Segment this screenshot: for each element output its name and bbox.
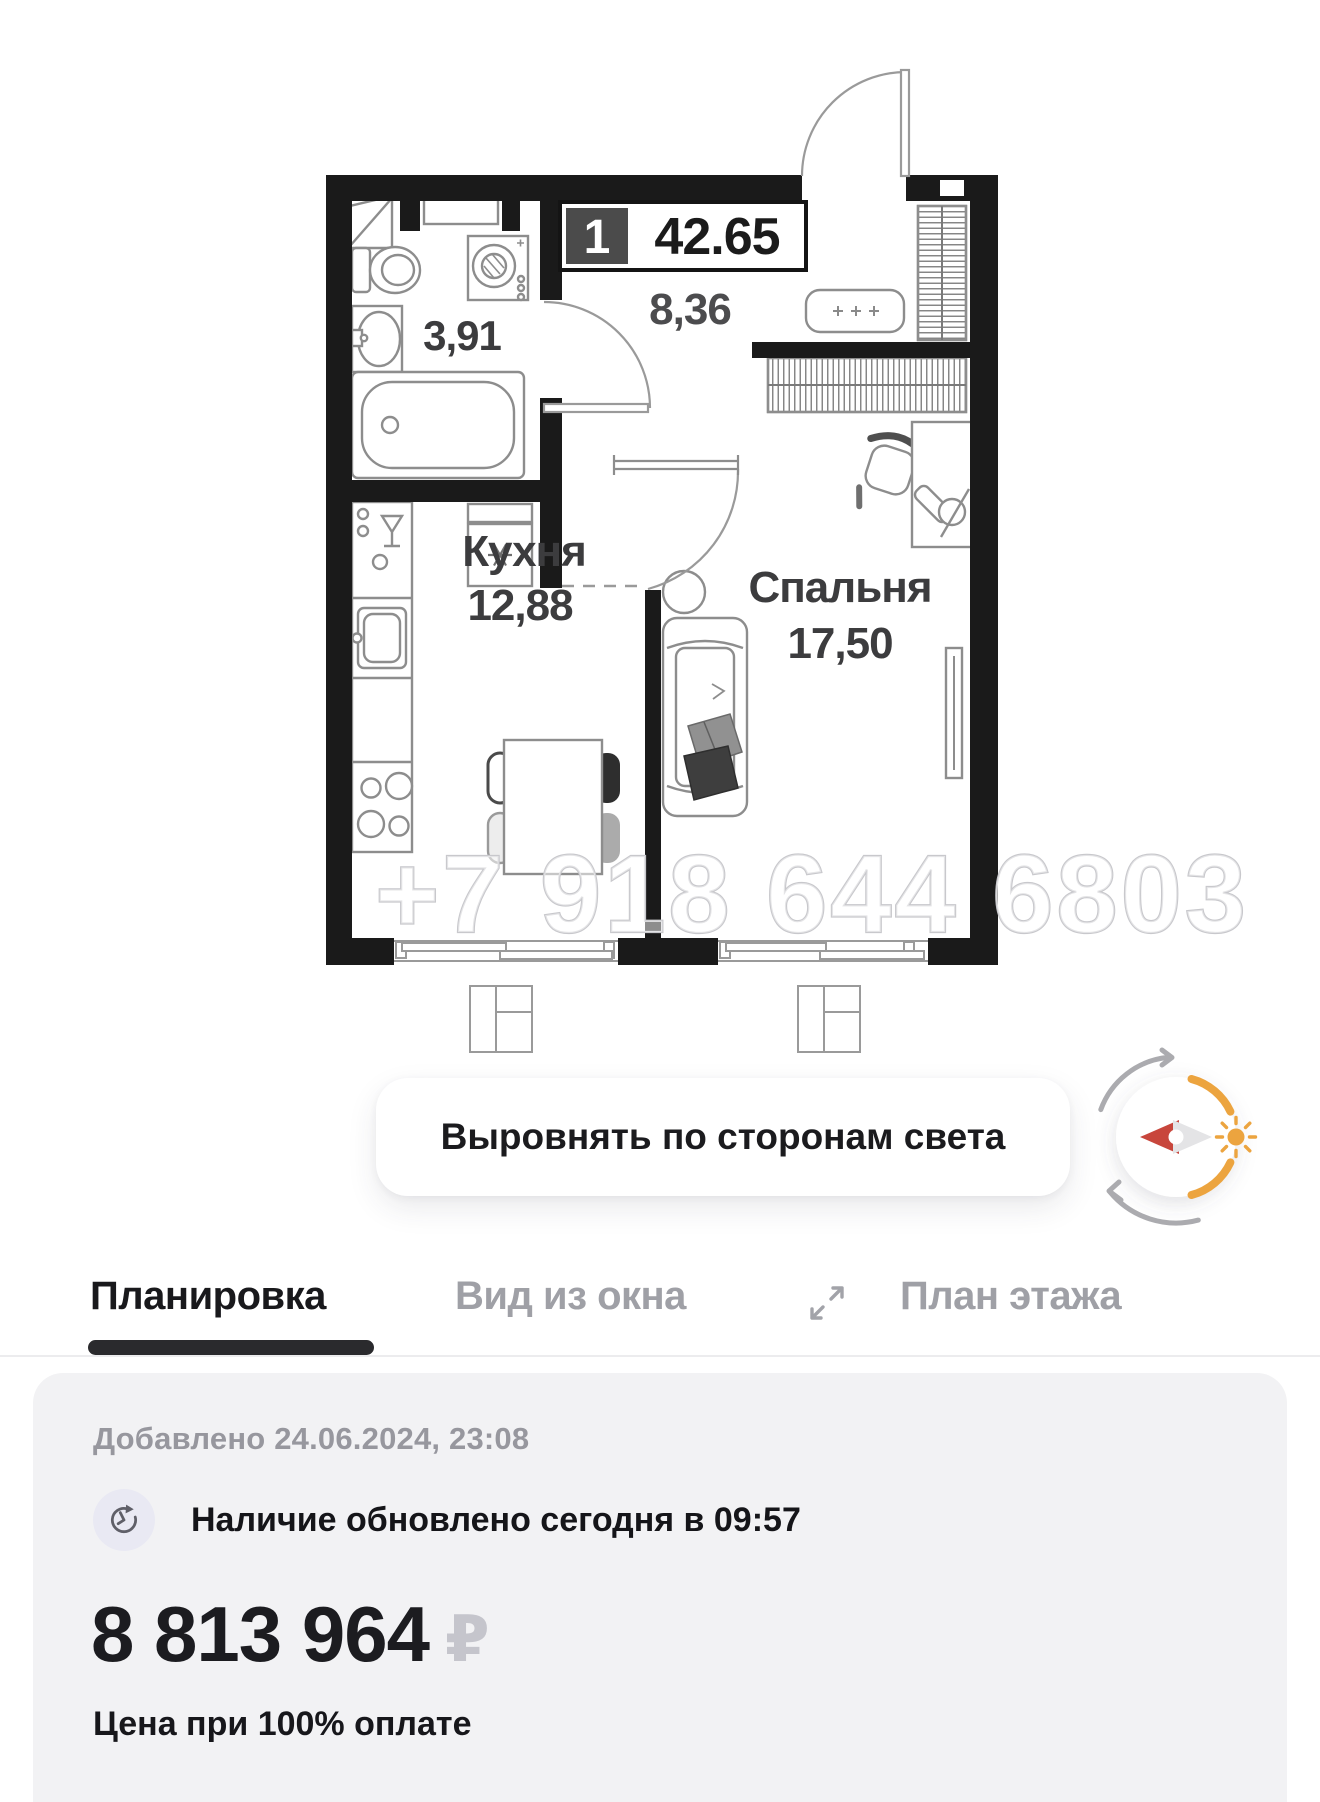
badge-rooms-count: 1 — [584, 211, 611, 264]
availability-row: Наличие обновлено сегодня в 09:57 — [93, 1489, 801, 1551]
expand-icon[interactable] — [804, 1280, 850, 1326]
ruble-sign: ₽ — [445, 1608, 490, 1672]
compass-icon — [1078, 1035, 1278, 1235]
view-tabs: Планировка Вид из окна План этажа — [0, 1260, 1320, 1370]
compass-widget[interactable] — [1078, 1035, 1278, 1235]
desk — [912, 422, 972, 547]
tab-planirovka[interactable]: Планировка — [90, 1274, 326, 1319]
bedroom-name-label: Спальня — [748, 563, 931, 612]
updated-clock-icon — [93, 1489, 155, 1551]
kitchen-area-label: 12,88 — [467, 581, 573, 630]
bedroom-area-label: 17,50 — [787, 619, 892, 668]
tab-plan-etazha[interactable]: План этажа — [900, 1274, 1121, 1319]
hallway-area-label: 8,36 — [649, 285, 731, 334]
price-info-card: Добавлено 24.06.2024, 23:08 Наличие обно… — [33, 1373, 1287, 1802]
sun-icon — [1217, 1118, 1256, 1157]
price-value: 8 813 964 — [91, 1595, 429, 1673]
apartment-listing-page: 1 42.65 3,91 8,36 Кухня 12,88 Спальня 17… — [0, 0, 1320, 1802]
watermark-phone: +7 918 644 6803 — [375, 833, 1249, 956]
availability-updated-text: Наличие обновлено сегодня в 09:57 — [191, 1501, 801, 1540]
tabs-separator — [0, 1355, 1320, 1357]
active-tab-underline — [88, 1340, 374, 1355]
bathroom-area-label: 3,91 — [423, 312, 501, 359]
added-date-text: Добавлено 24.06.2024, 23:08 — [93, 1421, 529, 1457]
price-caption: Цена при 100% оплате — [93, 1705, 471, 1744]
badge-area: 42.65 — [654, 208, 779, 266]
price-row: 8 813 964 ₽ — [91, 1595, 490, 1673]
floor-plan-viewport[interactable]: 1 42.65 3,91 8,36 Кухня 12,88 Спальня 17… — [0, 0, 1320, 1062]
tab-vid-iz-okna[interactable]: Вид из окна — [455, 1274, 686, 1319]
plan-badge: 1 42.65 — [560, 202, 806, 270]
floor-plan-drawing: 1 42.65 3,91 8,36 Кухня 12,88 Спальня 17… — [0, 0, 1320, 1062]
align-to-cardinal-button[interactable]: Выровнять по сторонам света — [376, 1078, 1070, 1196]
kitchen-name-label: Кухня — [462, 527, 586, 576]
